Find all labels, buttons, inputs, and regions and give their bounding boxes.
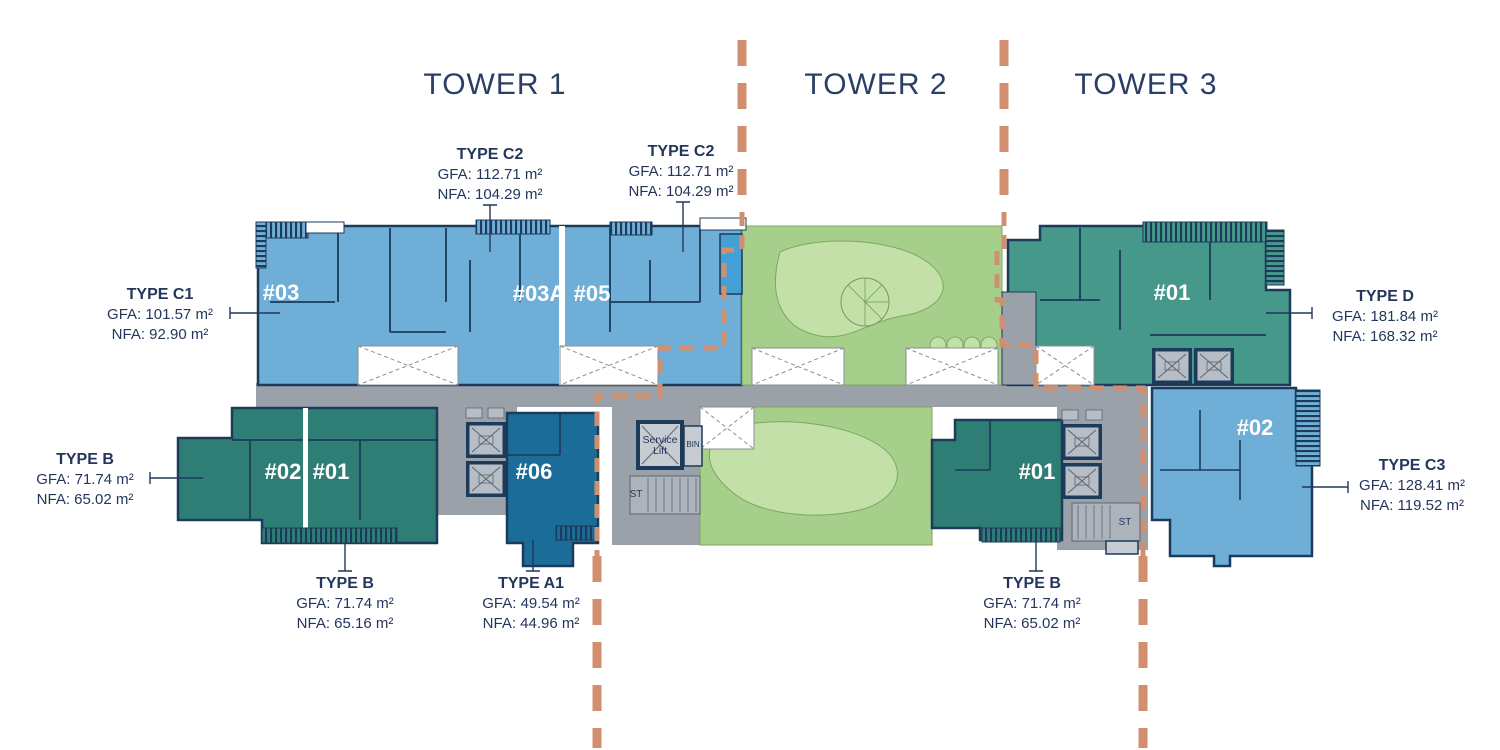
- unit-number-t3-01: #01: [1154, 280, 1191, 306]
- unit-number-t1-06: #06: [516, 459, 553, 485]
- unit-number-t2-01: #01: [1019, 459, 1056, 485]
- unit-number-t1-03: #03: [263, 280, 300, 306]
- label-type-c2-left: TYPE C2 GFA: 112.71 m² NFA: 104.29 m²: [437, 145, 542, 204]
- tower1-lower-block: [178, 408, 437, 543]
- stair-label-left: ST: [630, 490, 643, 501]
- unit-number-t3-02: #02: [1237, 415, 1274, 441]
- label-type-c3: TYPE C3 GFA: 128.41 m² NFA: 119.52 m²: [1359, 456, 1465, 515]
- label-type-a1: TYPE A1 GFA: 49.54 m² NFA: 44.96 m²: [482, 574, 580, 633]
- floor-plan-page: TOWER 1 TOWER 2 TOWER 3 TYPE C2 GFA: 112…: [0, 0, 1500, 750]
- tower1-upper-block: [258, 226, 742, 385]
- unit-number-t1-05: #05: [574, 281, 611, 307]
- label-type-b-bottom-left: TYPE B GFA: 71.74 m² NFA: 65.16 m²: [296, 574, 394, 633]
- tower1-title: TOWER 1: [423, 68, 566, 102]
- label-type-d: TYPE D GFA: 181.84 m² NFA: 168.32 m²: [1332, 287, 1438, 346]
- label-type-c2-right: TYPE C2 GFA: 112.71 m² NFA: 104.29 m²: [628, 142, 733, 201]
- tower3-title: TOWER 3: [1074, 68, 1217, 102]
- tower3-lobby: [1002, 292, 1036, 385]
- unit-number-t1-03a: #03A: [513, 281, 566, 307]
- floor-plan-drawing: [0, 0, 1500, 750]
- label-type-b-bottom-right: TYPE B GFA: 71.74 m² NFA: 65.02 m²: [983, 574, 1081, 633]
- bin-label: BIN: [686, 441, 699, 449]
- label-type-b-left: TYPE B GFA: 71.74 m² NFA: 65.02 m²: [36, 450, 134, 509]
- unit-number-t1-02: #02: [265, 459, 302, 485]
- unit-number-t1-01: #01: [313, 459, 350, 485]
- tower2-title: TOWER 2: [804, 68, 947, 102]
- service-lift-label: Service Lift: [638, 435, 682, 457]
- tower1-unit06-block: [507, 413, 598, 566]
- tower3-unit02-block: [1152, 388, 1312, 566]
- stair-label-right: ST: [1119, 518, 1132, 529]
- label-type-c1: TYPE C1 GFA: 101.57 m² NFA: 92.90 m²: [107, 285, 213, 344]
